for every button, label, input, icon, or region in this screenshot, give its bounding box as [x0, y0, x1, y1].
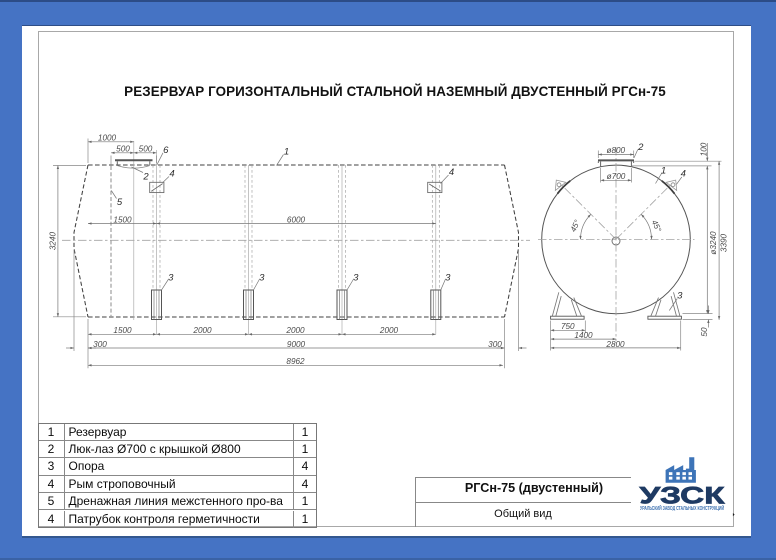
svg-text:45°: 45°	[569, 218, 583, 233]
svg-text:50: 50	[700, 327, 709, 337]
svg-text:8962: 8962	[286, 357, 305, 366]
svg-text:9000: 9000	[287, 340, 306, 349]
svg-text:3: 3	[259, 273, 265, 284]
svg-text:3: 3	[353, 273, 359, 284]
svg-text:2000: 2000	[285, 326, 305, 335]
svg-text:45°: 45°	[650, 219, 664, 234]
svg-text:6: 6	[163, 145, 169, 156]
svg-text:750: 750	[561, 322, 575, 331]
svg-text:2: 2	[142, 172, 149, 183]
svg-text:ø800: ø800	[606, 146, 625, 155]
svg-text:100: 100	[700, 142, 709, 156]
svg-text:500: 500	[116, 145, 130, 154]
svg-text:300: 300	[488, 340, 502, 349]
svg-text:2: 2	[637, 142, 644, 153]
svg-text:3: 3	[445, 273, 451, 284]
svg-text:1000: 1000	[98, 134, 117, 143]
svg-text:1500: 1500	[113, 215, 132, 224]
svg-text:2000: 2000	[379, 326, 399, 335]
svg-text:300: 300	[93, 340, 107, 349]
svg-text:2000: 2000	[192, 326, 212, 335]
svg-text:1500: 1500	[113, 326, 132, 335]
svg-text:УРАЛЬСКИЙ ЗАВОД СТАЛЬНЫХ КОНСТ: УРАЛЬСКИЙ ЗАВОД СТАЛЬНЫХ КОНСТРУКЦИЙ	[640, 504, 724, 512]
svg-text:5: 5	[117, 197, 123, 208]
svg-text:ø700: ø700	[607, 172, 626, 181]
svg-text:3: 3	[677, 291, 683, 302]
svg-text:4: 4	[681, 169, 686, 180]
svg-text:2800: 2800	[605, 340, 625, 349]
svg-text:1400: 1400	[574, 331, 593, 340]
svg-text:4: 4	[449, 167, 454, 178]
svg-text:ø3240: ø3240	[709, 231, 718, 255]
svg-text:500: 500	[139, 145, 153, 154]
svg-text:1: 1	[284, 147, 289, 158]
svg-text:3240: 3240	[48, 231, 57, 250]
svg-text:4: 4	[169, 169, 174, 180]
svg-text:1: 1	[661, 165, 666, 176]
svg-text:3390: 3390	[719, 233, 728, 252]
svg-text:6000: 6000	[287, 215, 306, 224]
svg-text:3: 3	[168, 273, 174, 284]
